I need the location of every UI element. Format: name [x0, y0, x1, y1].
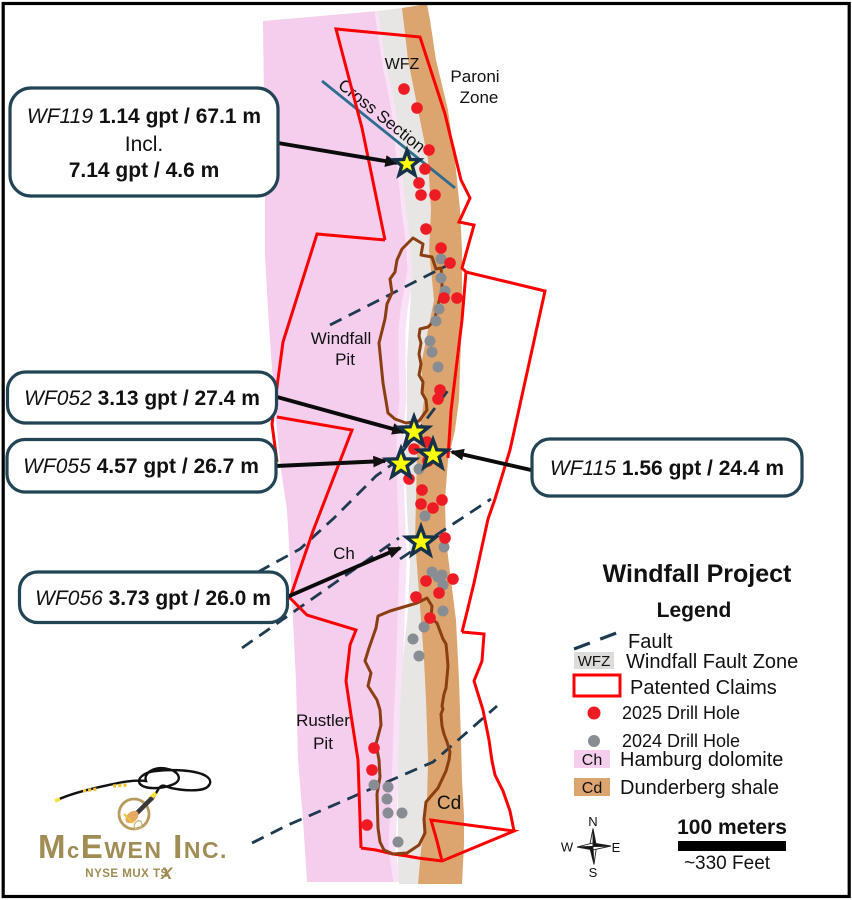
- svg-text:Cd: Cd: [582, 780, 602, 797]
- svg-text:WF056 3.73 gpt / 26.0 m: WF056 3.73 gpt / 26.0 m: [35, 587, 271, 610]
- svg-text:S: S: [589, 865, 598, 880]
- svg-text:7.14 gpt / 4.6 m: 7.14 gpt / 4.6 m: [69, 159, 220, 182]
- svg-text:2025 Drill Hole: 2025 Drill Hole: [622, 703, 740, 723]
- svg-text:W: W: [561, 840, 574, 855]
- svg-text:Legend: Legend: [657, 599, 732, 622]
- svg-text:Cd: Cd: [437, 793, 461, 814]
- svg-text:WF055 4.57 gpt / 26.7 m: WF055 4.57 gpt / 26.7 m: [23, 455, 259, 478]
- svg-text:Paroni: Paroni: [450, 67, 499, 86]
- svg-text:WF052 3.13 gpt / 27.4 m: WF052 3.13 gpt / 27.4 m: [24, 387, 260, 410]
- svg-text:Windfall Project: Windfall Project: [603, 560, 792, 588]
- svg-text:Ch: Ch: [333, 544, 355, 563]
- svg-text:E: E: [612, 840, 621, 855]
- svg-text:Fault: Fault: [628, 631, 673, 653]
- svg-text:NYSE MUX TS: NYSE MUX TS: [85, 868, 168, 880]
- svg-text:WFZ: WFZ: [578, 653, 610, 670]
- svg-text:WF119 1.14 gpt / 67.1 m: WF119 1.14 gpt / 67.1 m: [27, 105, 261, 128]
- svg-text:~330 Feet: ~330 Feet: [684, 853, 771, 874]
- svg-text:Windfall: Windfall: [311, 329, 371, 348]
- svg-text:2024 Drill Hole: 2024 Drill Hole: [622, 731, 740, 751]
- svg-text:Incl.: Incl.: [125, 133, 164, 156]
- svg-text:Rustler: Rustler: [296, 711, 350, 730]
- svg-text:WF115 1.56 gpt / 24.4 m: WF115 1.56 gpt / 24.4 m: [550, 457, 784, 480]
- svg-text:Pit: Pit: [313, 734, 333, 753]
- svg-text:Dunderberg shale: Dunderberg shale: [620, 777, 779, 799]
- svg-text:N: N: [588, 814, 597, 829]
- svg-text:Pit: Pit: [335, 350, 355, 369]
- svg-text:Ch: Ch: [582, 752, 602, 769]
- svg-text:WFZ: WFZ: [385, 56, 420, 73]
- svg-text:Patented Claims: Patented Claims: [630, 677, 777, 699]
- svg-text:Hamburg dolomite: Hamburg dolomite: [620, 749, 783, 771]
- svg-text:100 meters: 100 meters: [677, 816, 787, 839]
- svg-text:Windfall Fault Zone: Windfall Fault Zone: [626, 651, 798, 673]
- svg-text:Zone: Zone: [460, 88, 499, 107]
- svg-text:X: X: [160, 864, 174, 883]
